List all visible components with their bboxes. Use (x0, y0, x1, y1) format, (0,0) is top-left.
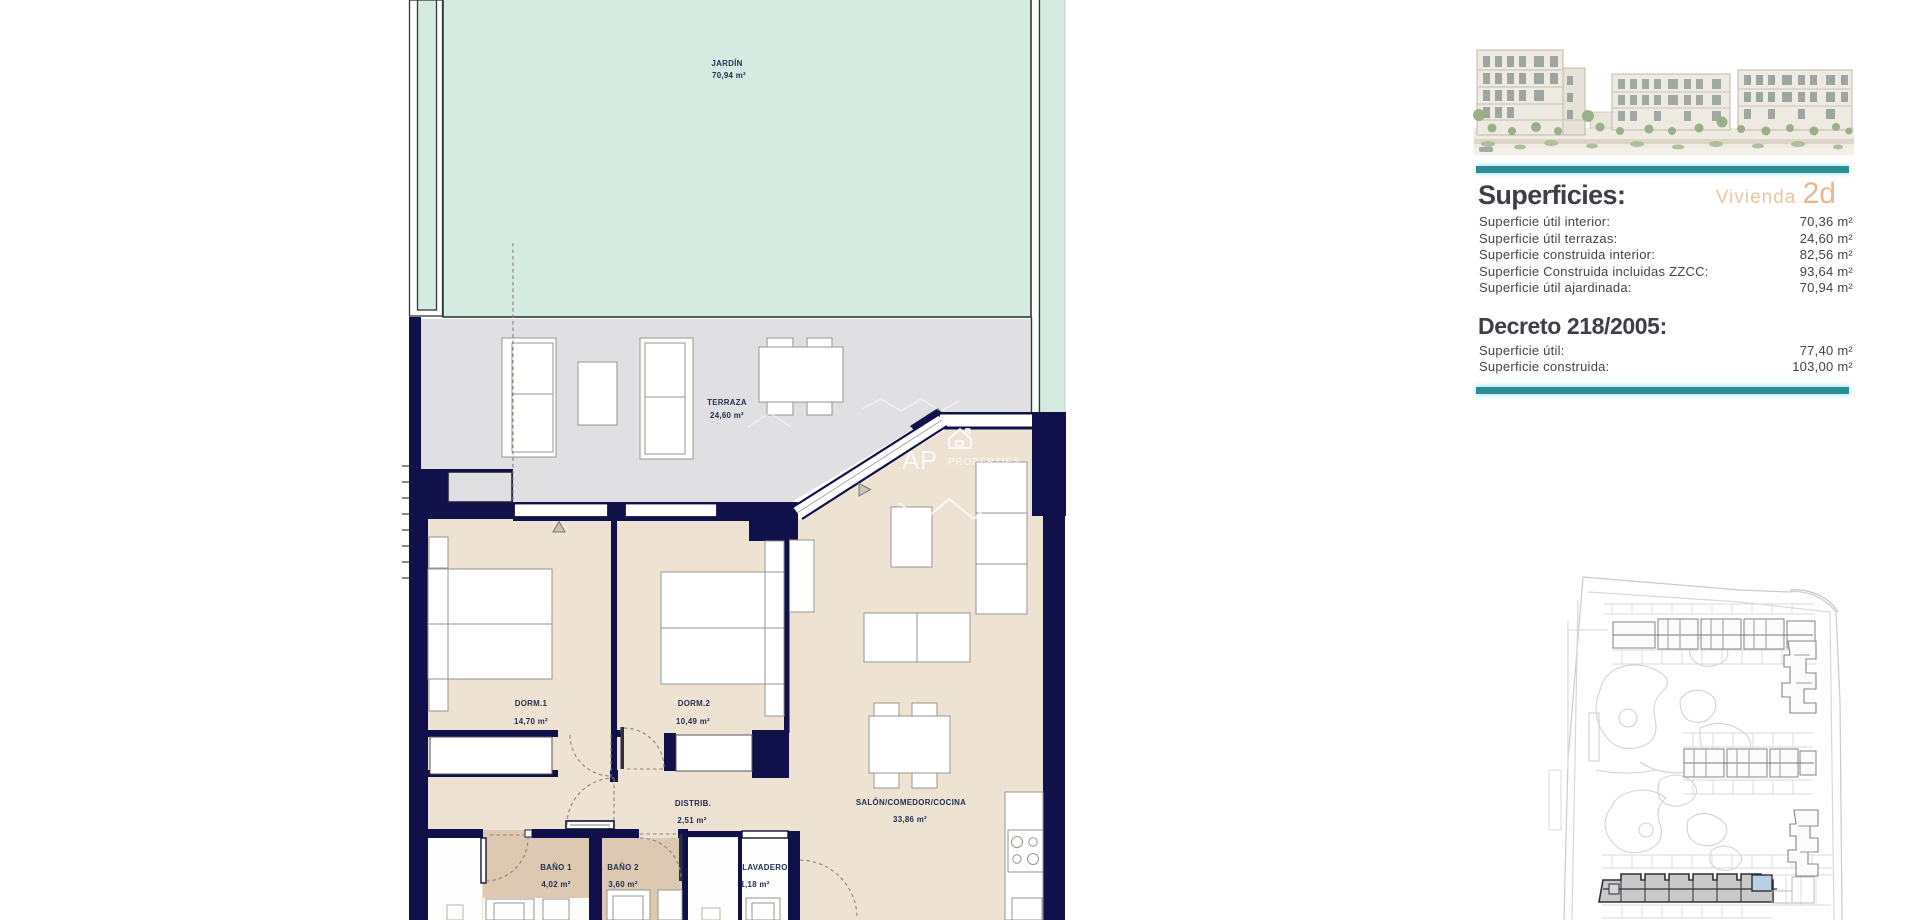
svg-text:33,86 m²: 33,86 m² (893, 815, 927, 824)
svg-text:JARDÍN: JARDÍN (711, 59, 742, 68)
svg-text:BAÑO 1: BAÑO 1 (540, 863, 572, 872)
svg-text:4,02 m²: 4,02 m² (541, 880, 570, 889)
svg-text:24,60 m²: 24,60 m² (710, 411, 744, 420)
svg-text:70,94 m²: 70,94 m² (712, 71, 746, 80)
svg-text:SALÓN/COMEDOR/COCINA: SALÓN/COMEDOR/COCINA (856, 798, 966, 807)
svg-text:BAÑO 2: BAÑO 2 (607, 863, 639, 872)
svg-text:DORM.1: DORM.1 (515, 699, 548, 708)
svg-text:AP: AP (902, 445, 938, 475)
svg-text:LAVADERO: LAVADERO (742, 863, 788, 872)
svg-text:10,49 m²: 10,49 m² (676, 717, 710, 726)
svg-text:TERRAZA: TERRAZA (707, 398, 747, 407)
svg-text:2,51 m²: 2,51 m² (677, 816, 706, 825)
svg-text:DORM.2: DORM.2 (678, 699, 711, 708)
svg-text:PROPERTIES: PROPERTIES (948, 457, 1020, 468)
svg-text:1,18 m²: 1,18 m² (740, 880, 769, 889)
svg-text:DISTRIB.: DISTRIB. (675, 799, 711, 808)
svg-text:14,70 m²: 14,70 m² (514, 717, 548, 726)
svg-text:3,60 m²: 3,60 m² (608, 880, 637, 889)
